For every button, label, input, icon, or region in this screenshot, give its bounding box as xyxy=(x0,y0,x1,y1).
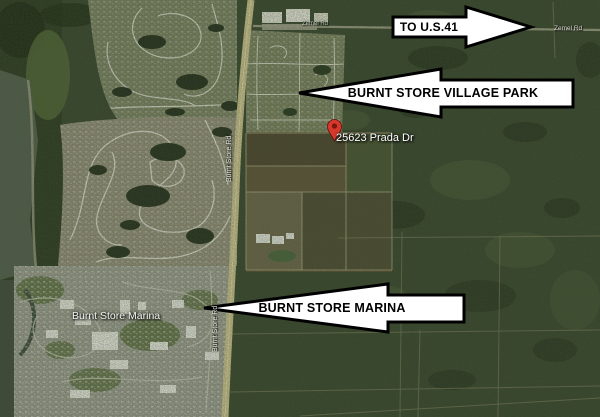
grain-overlay xyxy=(0,0,600,417)
satellite-map xyxy=(0,0,600,417)
aerial-map-image: TO U.S.41 BURNT STORE VILLAGE PARK BURNT… xyxy=(0,0,600,417)
